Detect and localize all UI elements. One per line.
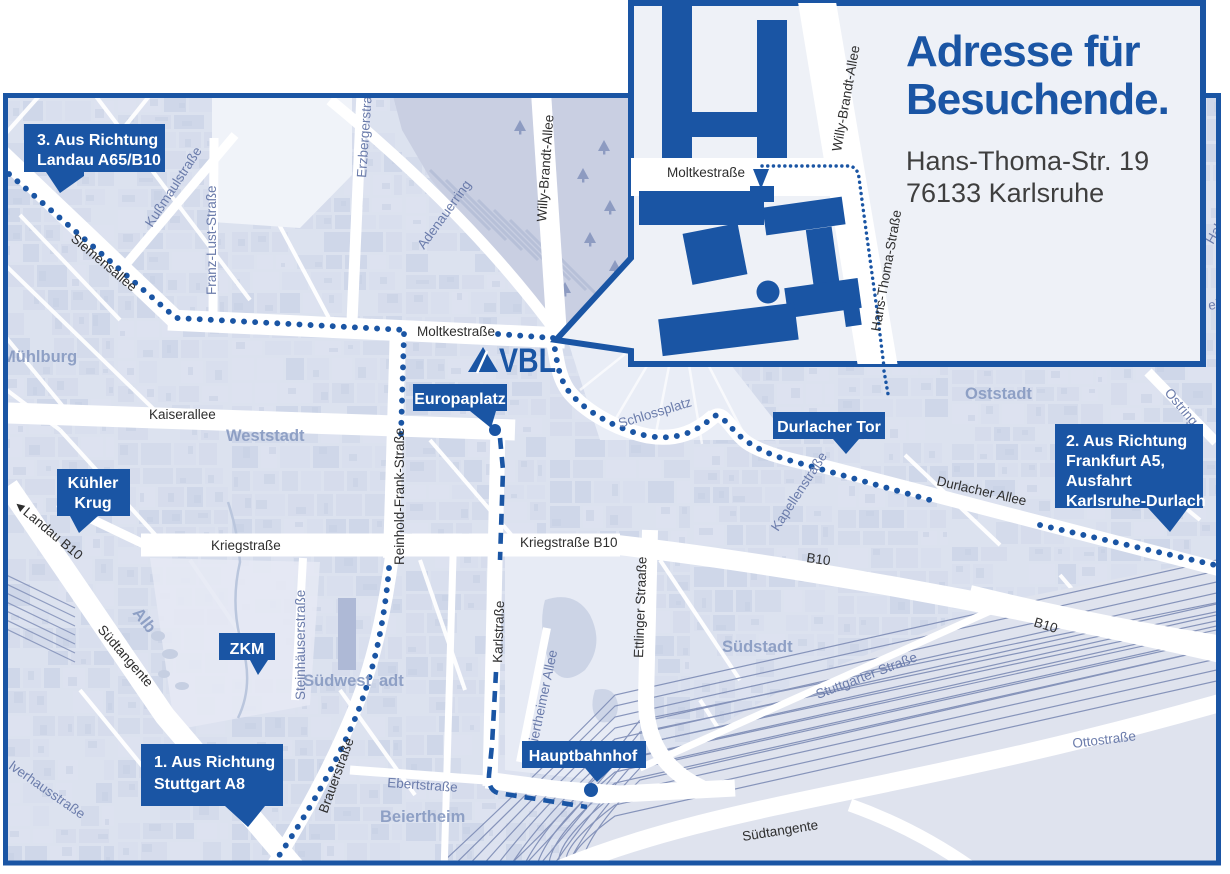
svg-text:Frankfurt A5,: Frankfurt A5, (1066, 453, 1165, 470)
svg-text:Besuchende.: Besuchende. (906, 75, 1169, 124)
svg-text:Moltkestraße: Moltkestraße (667, 165, 745, 180)
svg-text:Kriegstraße B10: Kriegstraße B10 (520, 535, 618, 550)
svg-text:Krug: Krug (74, 495, 111, 512)
svg-text:Landau A65/B10: Landau A65/B10 (37, 152, 161, 169)
svg-text:Südwest: Südwest (303, 672, 371, 690)
svg-text:Beiertheim: Beiertheim (380, 808, 465, 826)
svg-text:Mühlburg: Mühlburg (2, 348, 77, 366)
svg-text:Reinhold-Frank-Straße: Reinhold-Frank-Straße (392, 428, 407, 565)
svg-text:Kriegstraße: Kriegstraße (211, 538, 281, 553)
svg-text:VBL: VBL (499, 342, 556, 380)
svg-text:Adresse für: Adresse für (906, 27, 1140, 76)
svg-text:Hans-Thoma-Str. 19: Hans-Thoma-Str. 19 (906, 146, 1149, 176)
svg-text:Kühler: Kühler (68, 475, 119, 492)
svg-text:adt: adt (379, 672, 404, 690)
svg-text:Oststadt: Oststadt (965, 385, 1032, 403)
svg-text:Durlacher Tor: Durlacher Tor (777, 419, 881, 436)
svg-text:Karlstraße: Karlstraße (490, 600, 507, 663)
svg-text:ZKM: ZKM (230, 641, 265, 658)
svg-text:Stuttgart A8: Stuttgart A8 (154, 776, 245, 793)
svg-text:Ausfahrt: Ausfahrt (1066, 473, 1132, 490)
svg-text:Europaplatz: Europaplatz (414, 391, 506, 408)
svg-text:Südstadt: Südstadt (722, 638, 793, 656)
svg-text:Kaiserallee: Kaiserallee (149, 407, 216, 422)
svg-text:Franz-Lust-Straße: Franz-Lust-Straße (204, 185, 219, 295)
svg-text:Hauptbahnhof: Hauptbahnhof (529, 748, 638, 765)
svg-text:2. Aus Richtung: 2. Aus Richtung (1066, 433, 1187, 450)
svg-text:76133 Karlsruhe: 76133 Karlsruhe (906, 178, 1104, 208)
svg-text:Moltkestraße: Moltkestraße (417, 324, 495, 339)
svg-text:Karlsruhe-Durlach: Karlsruhe-Durlach (1066, 493, 1206, 510)
svg-text:3. Aus Richtung: 3. Aus Richtung (37, 132, 158, 149)
svg-text:1. Aus Richtung: 1. Aus Richtung (154, 754, 275, 771)
svg-text:Weststadt: Weststadt (226, 427, 305, 445)
